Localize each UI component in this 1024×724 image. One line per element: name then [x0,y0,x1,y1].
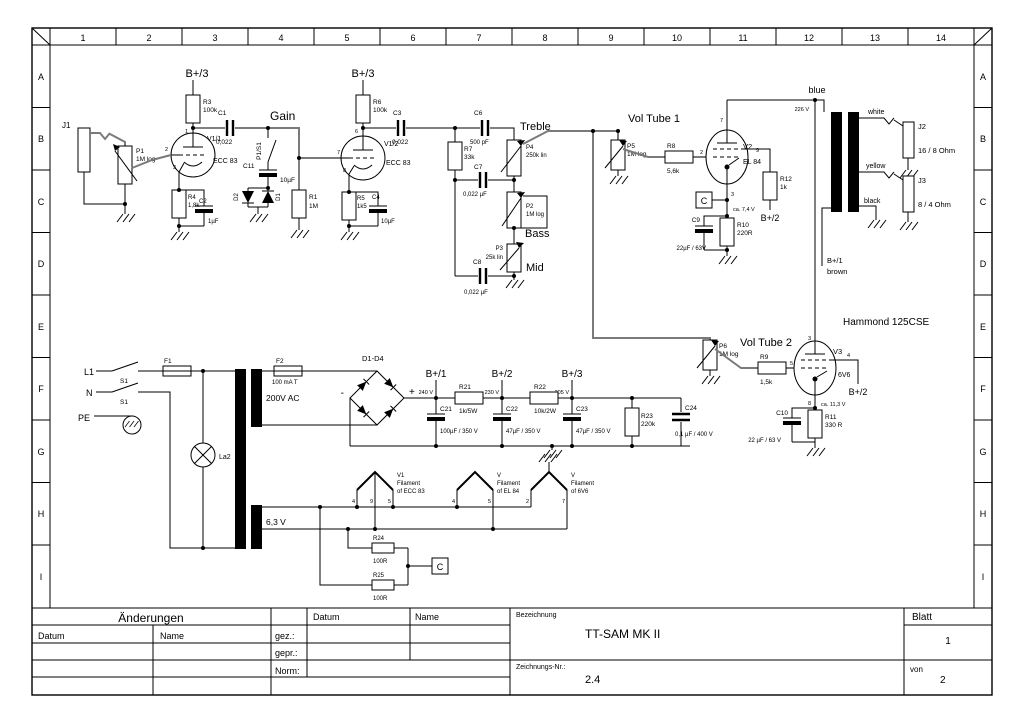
d1-ref: D1 [276,193,282,201]
c22-ref: C22 [506,406,518,413]
line-label: L1 [84,367,94,377]
sheet-number: 1 [945,636,951,647]
bplus2-label: B+/2 [849,387,868,397]
filament-word: Filament [397,481,420,487]
c6-ref: C6 [474,110,483,117]
r1-value: 1M [309,203,318,210]
r6-ref: R6 [373,99,382,106]
tone-stack: C6 500 pF R7 33k C7 0,022 µF Treble P4 2… [448,110,593,296]
c11-value: 10µF [280,177,295,184]
resistor-r1 [292,190,306,218]
c3-ref: C3 [393,110,402,117]
v3-type: 6V6 [838,372,851,379]
row-label: H [38,509,45,519]
input-stage: B+/3 R3 100k 1 2 3 V1/1 ECC 83 C1 0,022 … [62,68,349,240]
bridge-minus: - [341,388,344,399]
filament-v1-ref: V1 [397,473,405,479]
row-label: E [980,322,986,332]
p4-ref: P4 [526,145,534,151]
pin-label: 7 [562,499,565,505]
p5-ref: P5 [627,143,635,150]
f2-rating: 100 mA T [272,380,298,386]
r23-ref: R23 [641,413,653,420]
c23-value: 47µF / 350 V [576,429,610,435]
col-label: 8 [542,33,547,43]
resistor-r21 [455,392,483,404]
junction-dots [123,98,817,568]
col-label: 14 [936,33,946,43]
r25-value: 100R [373,596,388,602]
r10-value: 220R [737,230,753,237]
pin-label: 2 [526,499,529,505]
c9-value: 22µF / 63V [677,246,706,252]
resistor-r9 [758,362,786,374]
p3-value: 25k lin [486,255,503,261]
row-label: G [37,447,44,457]
c2-value: 1µF [208,219,219,225]
name-column-header: Name [160,631,184,641]
cathode-voltage-v2: ca. 7,4 V [733,207,755,213]
yellow-wire-label: yellow [866,163,886,170]
c10-ref: C10 [776,410,788,417]
row-label: B [980,134,986,144]
pin-label: 5 [790,361,793,367]
earth-symbol [123,416,141,434]
r7-value: 33k [464,154,475,161]
bplus2-label: B+/2 [761,213,780,223]
resistor-r10 [720,218,734,246]
j2-impedance: 16 / 8 Ohm [918,146,955,155]
pin-label: 3 [173,165,176,171]
c8-ref: C8 [473,259,482,266]
v2-type: EL 84 [743,159,761,166]
power-stage-v2: Vol Tube 1 P5 1M log R8 5,6k 2 7 V2 9 EL… [593,85,826,341]
filament-word: Filament [571,481,594,487]
p2-ref: P2 [526,204,534,210]
r4-ref: R4 [188,195,196,201]
c7-value: 0,022 µF [463,192,487,198]
col-label: 6 [410,33,415,43]
col-label: 10 [672,33,682,43]
blue-wire-label: blue [808,85,825,95]
r7-ref: R7 [464,146,473,153]
r10-ref: R10 [737,222,749,229]
changes-header: Änderungen [118,611,183,625]
r21-ref: R21 [459,384,471,391]
col-label: 7 [476,33,481,43]
mid-label: Mid [526,262,544,274]
second-stage: B+/3 R6 100k 6 7 8 V1/2 ECC 83 C3 0,022 … [337,68,455,240]
c21-value: 100µF / 350 V [440,429,478,435]
c4-value: 10µF [381,219,395,225]
rail-voltage: 230 V [485,390,500,396]
col-label: 3 [212,33,217,43]
name-column-header: Name [415,612,439,622]
row-label: G [979,447,986,457]
schematic-sheet: 1 2 3 4 5 6 7 8 9 10 11 12 13 14 A B C D… [0,0,1024,724]
power-stage-v3: Vol Tube 2 P6 1M log R9 1,5k 5 3 V3 4 6V… [697,336,867,456]
node-c-label: C [701,196,708,206]
c2-ref: C2 [199,199,207,205]
bridge-plus: + [409,387,415,398]
resistor-r3 [186,95,200,123]
col-label: 2 [146,33,151,43]
r24-ref: R24 [373,536,385,542]
f2-ref: F2 [276,358,284,365]
r25-ref: R25 [373,573,385,579]
pot-p4-treble [507,140,521,176]
v2-ref: V2 [743,142,752,151]
p6-ref: P6 [719,343,727,350]
of-label: von [910,665,923,674]
resistor-r12 [763,172,777,200]
title-block: Änderungen Datum Name Datum Name gez.: g… [32,608,992,695]
c10-value: 22 µF / 63 V [748,438,781,444]
pin-label: 5 [488,499,491,505]
bplus2-label: B+/2 [492,369,513,380]
c11-ref: C11 [243,163,255,170]
r21-value: 1k/5W [459,408,478,415]
pin-label: 1 [185,129,188,135]
c24-ref: C24 [685,405,697,412]
plate-voltage: 226 V [795,107,810,113]
row-label: I [40,572,43,582]
c4-ref: C4 [372,195,380,201]
bplus1-label: B+/1 [426,369,447,380]
power-transformer-primary [235,369,246,549]
row-label: H [980,509,987,519]
drawn-by-label: gez.: [275,631,295,641]
resistor-r6 [356,95,370,123]
switch-s1-label: S1 [120,378,128,385]
pin-label: 2 [165,147,168,153]
c3-value: 0,022 [392,139,409,146]
col-label: 12 [804,33,814,43]
resistor-r11 [808,410,822,438]
pot-p2-bass [507,192,521,228]
resistor-r25 [372,580,394,590]
r22-value: 10k/2W [534,408,557,415]
filament-v-ref: V [497,473,501,479]
col-label: 13 [870,33,880,43]
switch-s1-label: S1 [120,399,128,406]
bridge-ref: D1-D4 [362,354,384,363]
r23-value: 220k [641,421,656,428]
r9-value: 1,5k [760,379,773,386]
resistor-r23 [625,408,639,436]
resistor-r7 [448,142,462,170]
drawing-title: TT-SAM MK II [585,627,660,641]
row-label: B [38,134,44,144]
pin-label: 4 [352,499,355,505]
row-letters-left: A B C D E F G H I [37,72,44,582]
p1-ref: P1 [136,148,144,155]
r6-value: 100k [373,107,388,114]
r8-ref: R8 [667,143,676,150]
r1-ref: R1 [309,194,318,201]
la2-ref: La2 [219,454,231,461]
r5-ref: R5 [357,196,365,202]
c7-ref: C7 [474,164,483,171]
r24-value: 100R [373,559,388,565]
bplus1-label: B+/1 [827,256,843,265]
r22-ref: R22 [534,384,546,391]
r12-value: 1k [780,184,788,191]
j1-ref: J1 [62,121,71,130]
row-label: F [980,384,986,394]
heater-voltage: 6,3 V [266,517,286,527]
col-label: 4 [278,33,283,43]
r11-value: 330 R [825,422,843,429]
col-label: 9 [608,33,613,43]
pin-label: 3 [731,192,734,198]
node-c-label: C [437,562,444,572]
earth-label: PE [78,413,90,423]
f1-ref: F1 [164,358,172,365]
white-wire-label: white [867,109,884,116]
speaker-jack-j2 [903,122,914,158]
vol-tube-1-label: Vol Tube 1 [628,113,680,125]
drawing-number: 2.4 [585,674,600,686]
v1-1-type: ECC 83 [213,158,238,165]
filament-of-ecc83: of ECC 83 [397,489,425,495]
cathode-voltage-v3: ca. 11,3 V [821,402,846,408]
pin-label: 8 [343,168,346,174]
row-label: D [980,259,987,269]
r12-ref: R12 [780,176,792,183]
filament-v-ref: V [571,473,575,479]
p4-value: 250k lin [526,153,547,159]
gain-label: Gain [270,109,295,123]
filament-of-6v6: of 6V6 [571,489,589,495]
c24-value: 0,1 µF / 400 V [675,432,713,438]
v3-ref: V3 [833,347,842,356]
pin-label: 6 [355,129,358,135]
output-transformer: B+/1 brown white J2 16 / 8 Ohm yellow J3… [815,100,955,328]
resistor-r24 [372,543,394,553]
pin-label: 7 [337,150,340,156]
r8-value: 5,6k [667,168,680,175]
r11-ref: R11 [825,414,837,421]
r5-value: 1k5 [357,204,367,210]
bass-label: Bass [525,228,550,240]
c21-ref: C21 [440,406,452,413]
filament-word: Filament [497,481,520,487]
col-label: 5 [344,33,349,43]
brown-wire-label: brown [827,267,847,276]
neutral-label: N [86,388,93,398]
vol-tube-2-label: Vol Tube 2 [740,337,792,349]
j3-ref: J3 [918,176,926,185]
resistor-r4 [172,190,186,218]
c6-value: 500 pF [470,140,489,146]
p1s1-switch-label: P1/S1 [256,142,263,160]
c1-ref: C1 [218,110,227,117]
black-wire-label: black [864,198,881,205]
pin-label: 4 [847,353,850,359]
filament-of-el84: of EL 84 [497,489,520,495]
j3-impedance: 8 / 4 Ohm [918,200,951,209]
sheet-total: 2 [940,675,946,686]
resistor-r22 [530,392,558,404]
power-supply: L1 S1 F1 N S1 PE La2 F2 100 mA T 200V AC… [78,354,713,602]
speaker-jack-j3 [903,176,914,212]
pin-label: 7 [720,118,723,124]
c8-value: 0,022 µF [464,290,488,296]
c22-value: 47µF / 350 V [506,429,540,435]
pin-label: 5 [388,499,391,505]
date-column-header: Datum [38,631,65,641]
c23-ref: C23 [576,406,588,413]
pin-label: 8 [808,401,811,407]
row-letters-right: A B C D E F G H I [979,72,986,582]
r3-ref: R3 [203,99,212,106]
hv-winding-voltage: 200V AC [266,393,300,403]
sheet-label: Blatt [912,612,932,623]
p3-ref: P3 [496,246,504,252]
row-label: E [38,322,44,332]
row-label: A [980,72,986,82]
resistor-r8 [665,151,693,163]
designation-label: Bezeichnung [516,612,557,619]
c1-value: 0,022 [216,139,233,146]
date-column-header: Datum [313,612,340,622]
pin-label: 3 [808,336,811,342]
column-numbers: 1 2 3 4 5 6 7 8 9 10 11 12 13 14 [80,33,946,43]
r9-ref: R9 [760,354,769,361]
bplus3-label: B+/3 [186,68,209,80]
bplus3-label: B+/3 [562,369,583,380]
row-label: I [982,572,985,582]
power-transformer-hv-winding [251,369,262,427]
norm-label: Norm: [275,666,300,676]
pin-label: 9 [370,499,373,505]
rail-voltage: 240 V [419,390,434,396]
r3-value: 100k [203,107,218,114]
row-label: C [980,197,987,207]
row-label: F [38,384,44,394]
row-label: A [38,72,44,82]
input-jack-j1 [78,128,90,172]
pin-label: 4 [452,499,455,505]
resistor-r5 [342,192,356,220]
drawing-number-label: Zeichnungs-Nr.: [516,664,565,671]
bplus3-label: B+/3 [352,68,375,80]
checked-by-label: gepr.: [275,648,298,658]
c9-ref: C9 [692,217,701,224]
col-label: 1 [80,33,85,43]
row-label: C [38,197,45,207]
transformer-model: Hammond 125CSE [843,317,929,328]
pin-label: 2 [700,150,703,156]
j2-ref: J2 [918,122,926,131]
col-label: 11 [738,33,747,43]
power-transformer-heater-winding [251,505,262,549]
p2-value: 1M log [526,212,544,218]
row-label: D [38,259,45,269]
v1-2-type: ECC 83 [386,160,411,167]
d2-ref: D2 [234,193,240,201]
